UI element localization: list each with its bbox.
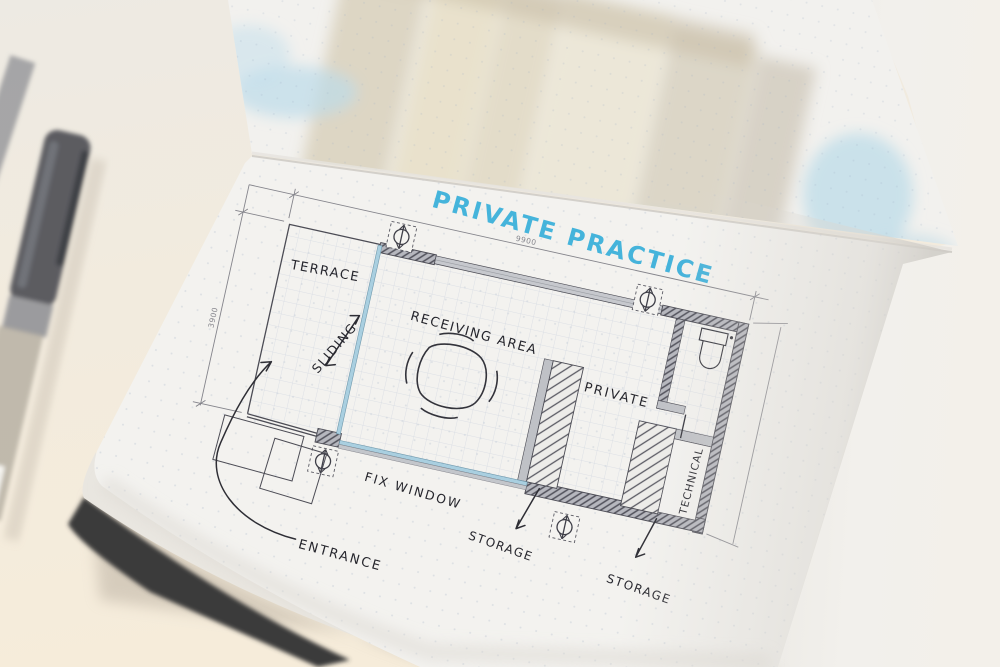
notebook-photo: 9900 3900 xyxy=(0,0,1000,667)
section-marker xyxy=(308,446,339,477)
section-marker xyxy=(386,221,417,252)
photo-scene: 9900 3900 xyxy=(0,0,1000,667)
section-marker xyxy=(549,512,580,543)
